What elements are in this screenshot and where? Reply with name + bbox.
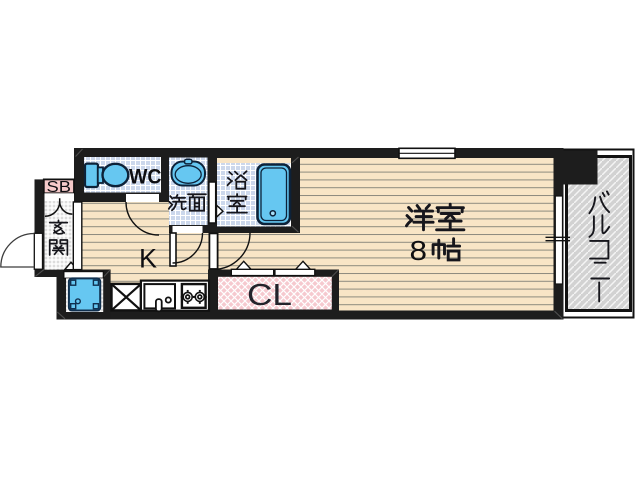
svg-text:WC: WC [129,165,162,189]
svg-text:CL: CL [247,277,292,312]
svg-text:K: K [139,244,157,274]
svg-text:SB: SB [47,179,72,196]
svg-text:8: 8 [410,235,428,266]
